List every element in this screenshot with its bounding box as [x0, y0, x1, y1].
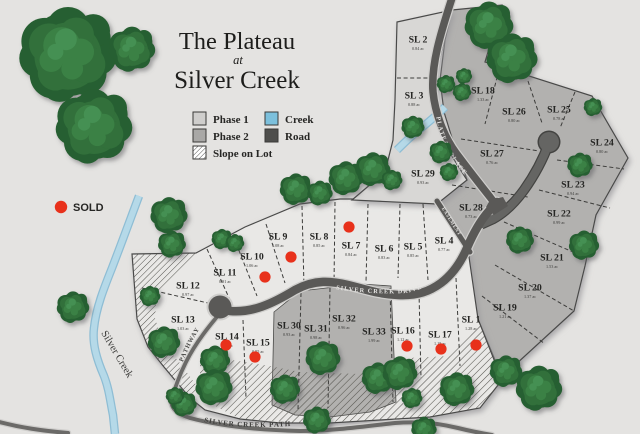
svg-text:SL 16: SL 16: [391, 326, 415, 337]
svg-text:0.76 ac: 0.76 ac: [486, 160, 498, 165]
svg-text:SL 12: SL 12: [176, 281, 200, 292]
svg-text:0.83 ac: 0.83 ac: [378, 255, 390, 260]
svg-text:SL 19: SL 19: [493, 303, 517, 314]
svg-text:0.80 ac: 0.80 ac: [596, 149, 608, 154]
svg-text:1.08 ac: 1.08 ac: [272, 243, 284, 248]
svg-text:0.85 ac: 0.85 ac: [407, 253, 419, 258]
svg-text:SL 4: SL 4: [435, 236, 454, 247]
svg-text:Phase 1: Phase 1: [213, 114, 249, 126]
svg-text:Slope on Lot: Slope on Lot: [213, 148, 273, 160]
svg-text:0.77 ac: 0.77 ac: [438, 247, 450, 252]
svg-text:SOLD: SOLD: [73, 202, 104, 214]
svg-text:SL 7: SL 7: [342, 241, 361, 252]
svg-text:0.98 ac: 0.98 ac: [310, 335, 322, 340]
svg-text:SL 33: SL 33: [362, 327, 386, 338]
svg-text:SL 23: SL 23: [561, 180, 585, 191]
svg-text:0.73 ac: 0.73 ac: [465, 214, 477, 219]
svg-text:0.97 ac: 0.97 ac: [182, 292, 194, 297]
svg-text:SL 27: SL 27: [480, 149, 504, 160]
svg-text:SL 21: SL 21: [540, 253, 564, 264]
svg-text:1.03 ac: 1.03 ac: [177, 326, 189, 331]
svg-text:Road: Road: [285, 131, 310, 143]
svg-text:SL 3: SL 3: [405, 91, 424, 102]
svg-text:SL 8: SL 8: [310, 232, 329, 243]
svg-text:0.78 ac: 0.78 ac: [553, 116, 565, 121]
svg-text:Silver Creek: Silver Creek: [174, 67, 300, 94]
svg-text:SL 30: SL 30: [277, 321, 301, 332]
svg-text:SL 13: SL 13: [171, 315, 195, 326]
svg-text:SL 9: SL 9: [269, 232, 288, 243]
svg-text:0.94 ac: 0.94 ac: [567, 191, 579, 196]
svg-text:0.93 ac: 0.93 ac: [283, 332, 295, 337]
svg-text:SL 29: SL 29: [411, 169, 435, 180]
svg-text:SL 31: SL 31: [304, 324, 328, 335]
svg-text:0.85 ac: 0.85 ac: [313, 243, 325, 248]
svg-text:SL 18: SL 18: [471, 86, 495, 97]
svg-text:SL 28: SL 28: [459, 203, 483, 214]
svg-text:SL 22: SL 22: [547, 209, 571, 220]
svg-text:SL 25: SL 25: [547, 105, 571, 116]
svg-text:1.99 ac: 1.99 ac: [368, 338, 380, 343]
svg-text:SL 26: SL 26: [502, 107, 526, 118]
svg-text:SL 20: SL 20: [518, 283, 542, 294]
svg-text:0.84 ac: 0.84 ac: [345, 252, 357, 257]
svg-text:SL 11: SL 11: [213, 268, 236, 279]
svg-text:1.21 ac: 1.21 ac: [499, 314, 511, 319]
svg-text:The Plateau: The Plateau: [179, 28, 295, 55]
svg-text:SL 6: SL 6: [375, 244, 394, 255]
svg-text:SL 10: SL 10: [240, 252, 264, 263]
svg-text:SL 24: SL 24: [590, 138, 614, 149]
svg-text:0.84 ac: 0.84 ac: [412, 46, 424, 51]
svg-text:at: at: [233, 53, 243, 67]
svg-text:Phase 2: Phase 2: [213, 131, 249, 143]
svg-text:SL 5: SL 5: [404, 242, 423, 253]
svg-text:0.99 ac: 0.99 ac: [553, 220, 565, 225]
svg-text:1.53 ac: 1.53 ac: [546, 264, 558, 269]
svg-text:SL 15: SL 15: [246, 338, 270, 349]
svg-text:0.88 ac: 0.88 ac: [408, 102, 420, 107]
svg-text:1.28 ac: 1.28 ac: [465, 326, 477, 331]
svg-text:Creek: Creek: [285, 114, 314, 126]
svg-text:SL 1: SL 1: [462, 315, 481, 326]
svg-text:SL 17: SL 17: [428, 330, 452, 341]
svg-text:1.06 ac: 1.06 ac: [246, 263, 258, 268]
svg-text:1.37 ac: 1.37 ac: [524, 294, 536, 299]
svg-text:0.93 ac: 0.93 ac: [417, 180, 429, 185]
svg-text:SL 32: SL 32: [332, 314, 356, 325]
svg-text:1.33 ac: 1.33 ac: [477, 97, 489, 102]
svg-text:SL 2: SL 2: [409, 35, 428, 46]
svg-text:0.91 ac: 0.91 ac: [219, 279, 231, 284]
svg-text:0.80 ac: 0.80 ac: [508, 118, 520, 123]
svg-text:0.96 ac: 0.96 ac: [338, 325, 350, 330]
